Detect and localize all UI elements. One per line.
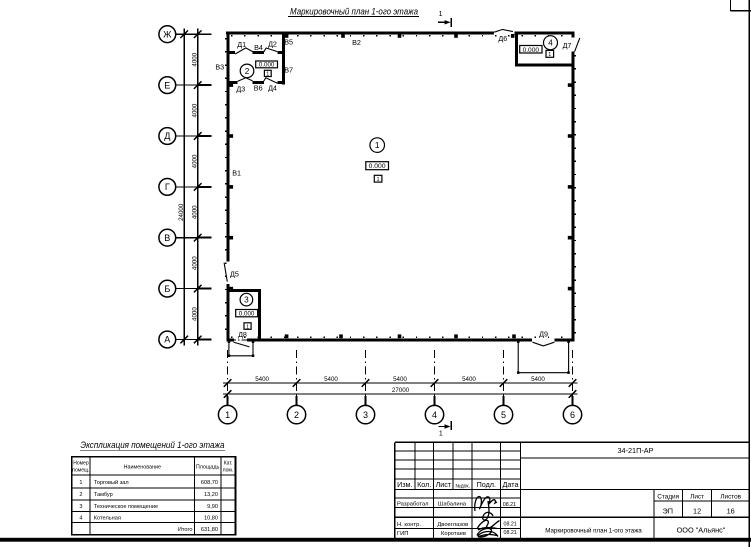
svg-text:16: 16 — [727, 506, 735, 515]
svg-text:Наименование: Наименование — [124, 464, 161, 470]
svg-text:ООО "Альянс": ООО "Альянс" — [677, 526, 726, 535]
svg-text:5: 5 — [501, 410, 506, 420]
svg-text:5400: 5400 — [393, 376, 407, 383]
svg-text:4: 4 — [432, 410, 437, 420]
svg-text:В7: В7 — [284, 65, 293, 74]
svg-text:Стадия: Стадия — [657, 494, 679, 501]
svg-text:0.000: 0.000 — [259, 62, 275, 69]
svg-text:1: 1 — [266, 72, 269, 78]
svg-text:Н. контр.: Н. контр. — [397, 522, 421, 528]
svg-text:В: В — [164, 233, 170, 243]
svg-text:Шабалина: Шабалина — [438, 502, 467, 508]
svg-text:1: 1 — [225, 410, 230, 420]
svg-text:Д5: Д5 — [230, 269, 239, 278]
svg-text:Г: Г — [165, 182, 170, 192]
svg-text:0.000: 0.000 — [369, 163, 386, 170]
svg-text:6: 6 — [570, 410, 575, 420]
svg-text:Двоеглазов: Двоеглазов — [437, 522, 468, 528]
svg-text:631,80: 631,80 — [201, 527, 218, 533]
svg-text:В1: В1 — [232, 169, 241, 178]
svg-text:0.000: 0.000 — [523, 47, 540, 54]
svg-text:Е: Е — [164, 80, 170, 90]
svg-text:Дата: Дата — [503, 480, 519, 489]
svg-text:Котельная: Котельная — [94, 515, 121, 521]
svg-text:Площадь: Площадь — [196, 464, 220, 470]
svg-text:№док.: №док. — [455, 484, 470, 490]
svg-text:4000: 4000 — [192, 52, 199, 66]
svg-text:Д2: Д2 — [268, 40, 277, 49]
svg-text:Д9: Д9 — [539, 329, 548, 338]
svg-text:Маркировочный план 1-ого этажа: Маркировочный план 1-ого этажа — [290, 7, 418, 17]
svg-text:4000: 4000 — [192, 256, 199, 270]
svg-text:ЭП: ЭП — [663, 506, 674, 515]
svg-text:В3: В3 — [215, 62, 224, 71]
svg-text:1: 1 — [375, 140, 380, 150]
svg-text:Д4: Д4 — [268, 84, 277, 93]
svg-text:Итого: Итого — [178, 527, 193, 533]
svg-text:Лист: Лист — [690, 494, 704, 501]
svg-text:Ж: Ж — [163, 29, 172, 39]
svg-text:1: 1 — [377, 177, 380, 183]
svg-text:4000: 4000 — [192, 103, 199, 117]
svg-text:9,90: 9,90 — [207, 504, 218, 510]
svg-text:Техническое помещение: Техническое помещение — [94, 504, 158, 510]
svg-text:Д3: Д3 — [236, 84, 245, 93]
svg-text:5400: 5400 — [462, 376, 476, 383]
svg-text:1: 1 — [548, 52, 551, 58]
svg-text:Подл.: Подл. — [477, 480, 496, 489]
svg-text:3: 3 — [79, 504, 82, 510]
svg-text:Номер: Номер — [73, 461, 89, 467]
svg-text:В5: В5 — [284, 38, 293, 47]
svg-text:4000: 4000 — [192, 307, 199, 321]
svg-text:2: 2 — [79, 492, 82, 498]
svg-text:08.21: 08.21 — [504, 522, 517, 528]
svg-text:Д1: Д1 — [237, 40, 246, 49]
svg-text:ГИП: ГИП — [397, 531, 408, 537]
svg-text:08.21: 08.21 — [504, 530, 517, 536]
svg-text:Д: Д — [164, 131, 170, 141]
svg-text:13,20: 13,20 — [204, 492, 218, 498]
svg-text:Разработал: Разработал — [397, 502, 429, 508]
svg-text:помещ.: помещ. — [72, 468, 89, 474]
svg-text:34-21П-АР: 34-21П-АР — [617, 446, 653, 455]
svg-text:1: 1 — [439, 11, 443, 18]
svg-text:пом.: пом. — [223, 468, 233, 474]
svg-text:24000: 24000 — [178, 203, 185, 221]
svg-text:В6: В6 — [254, 84, 263, 93]
svg-text:Лист: Лист — [436, 480, 452, 489]
svg-text:10,80: 10,80 — [204, 515, 218, 521]
svg-text:Д6: Д6 — [498, 34, 507, 43]
svg-text:В4: В4 — [254, 43, 263, 52]
svg-text:Экспликация помещений 1-ого эт: Экспликация помещений 1-ого этажа — [81, 440, 225, 450]
svg-text:Изм.: Изм. — [397, 480, 412, 489]
svg-text:4: 4 — [79, 515, 82, 521]
svg-text:3: 3 — [363, 410, 368, 420]
svg-text:1: 1 — [79, 480, 82, 486]
svg-text:2: 2 — [245, 67, 250, 76]
svg-text:5400: 5400 — [255, 376, 269, 383]
svg-text:Тамбур: Тамбур — [94, 492, 113, 498]
svg-text:Д7: Д7 — [563, 41, 572, 50]
svg-text:27000: 27000 — [392, 387, 410, 394]
svg-text:В2: В2 — [352, 38, 361, 47]
svg-text:5400: 5400 — [531, 376, 545, 383]
svg-text:3: 3 — [244, 296, 249, 305]
svg-text:608,70: 608,70 — [201, 480, 218, 486]
svg-text:4000: 4000 — [192, 205, 199, 219]
svg-text:1: 1 — [439, 431, 443, 438]
svg-text:5400: 5400 — [324, 376, 338, 383]
svg-text:Торговый зал: Торговый зал — [94, 479, 129, 486]
svg-text:12: 12 — [693, 506, 701, 515]
svg-text:Коротаев: Коротаев — [441, 531, 466, 537]
svg-text:Д8: Д8 — [238, 330, 247, 339]
svg-text:4000: 4000 — [192, 154, 199, 168]
svg-text:2: 2 — [294, 410, 299, 420]
svg-text:4: 4 — [548, 39, 553, 48]
svg-text:Б: Б — [164, 284, 170, 294]
svg-text:0.000: 0.000 — [239, 311, 255, 318]
svg-text:А: А — [164, 335, 170, 345]
svg-text:Маркировочный план 1-ого этажа: Маркировочный план 1-ого этажа — [545, 527, 642, 534]
svg-text:Кат.: Кат. — [224, 461, 233, 467]
svg-text:Листов: Листов — [720, 494, 741, 501]
svg-text:Кол.: Кол. — [417, 480, 431, 489]
svg-text:08.21: 08.21 — [503, 502, 516, 508]
